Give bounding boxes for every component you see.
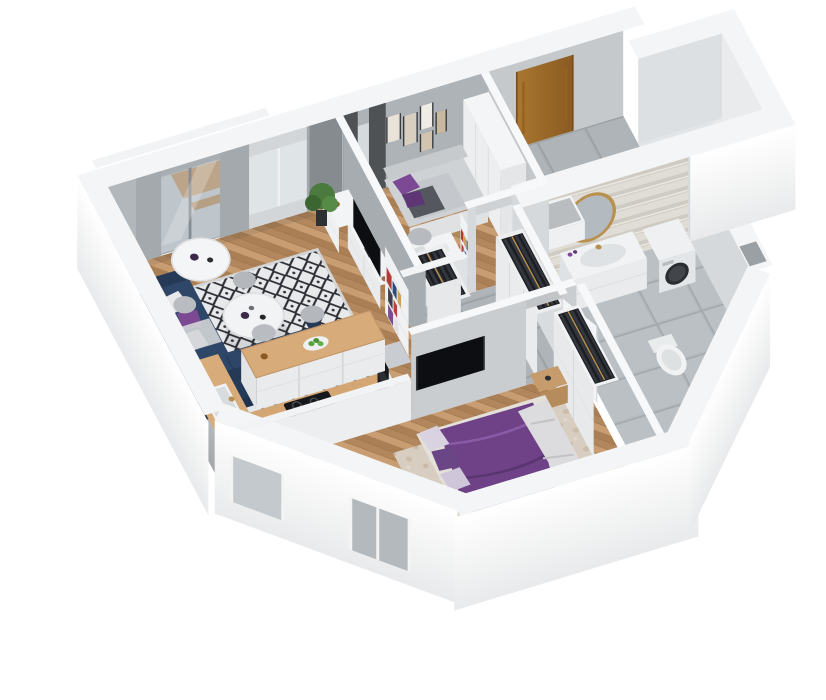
curtain-gray — [220, 144, 249, 238]
apartment-3d-render — [0, 0, 826, 700]
floorplan-canvas — [0, 0, 826, 700]
curtain-sheer — [249, 127, 307, 230]
